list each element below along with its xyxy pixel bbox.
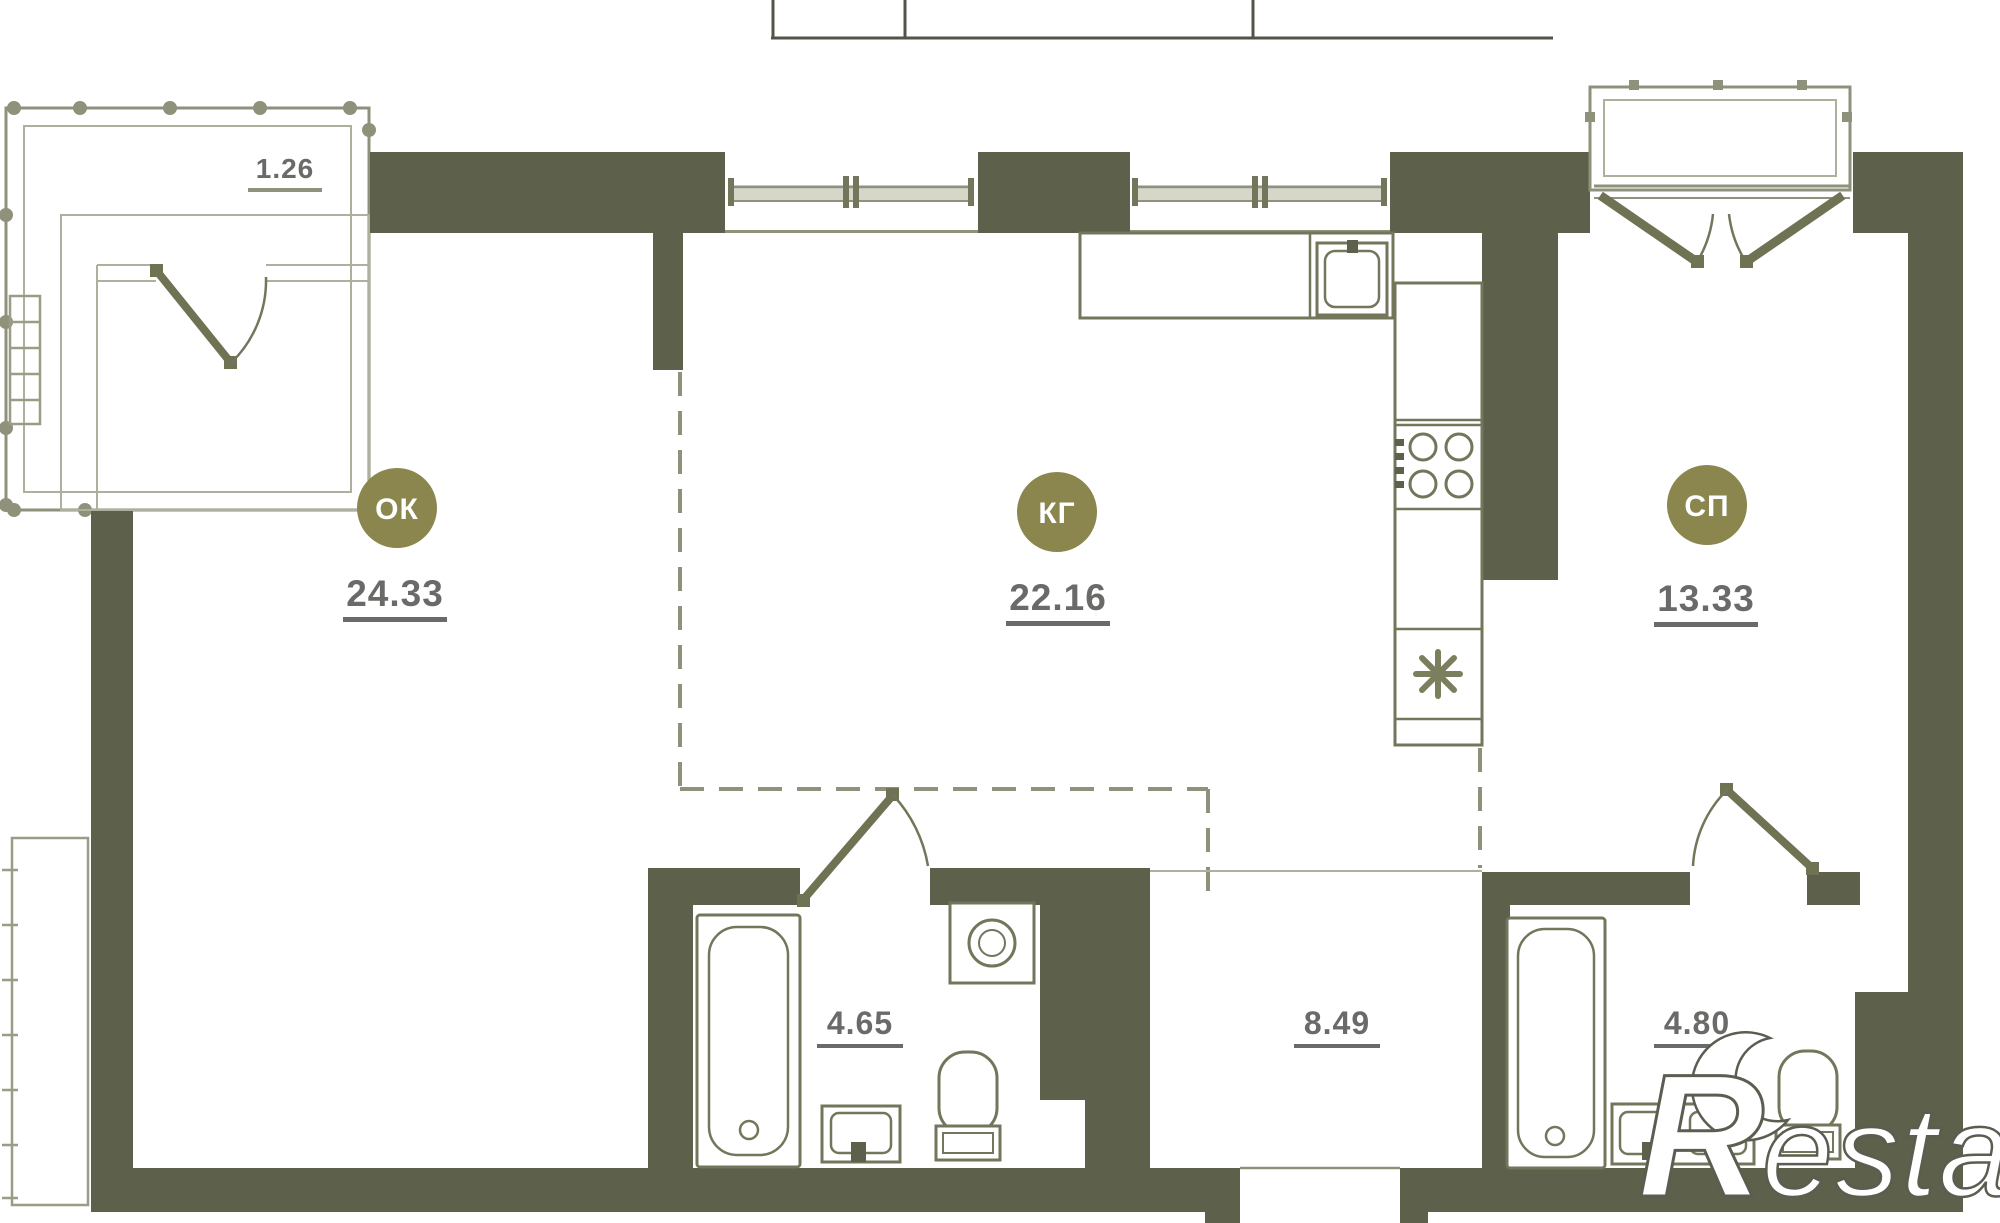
wall <box>1853 152 1963 233</box>
water-heater-icon <box>1416 652 1460 696</box>
room-area: 22.16 <box>1009 577 1107 618</box>
room-code: ОК <box>375 493 419 526</box>
area-underline <box>343 617 447 622</box>
bathtub-icon <box>697 915 800 1167</box>
wall <box>370 152 725 233</box>
area-underline <box>817 1044 903 1048</box>
wall <box>978 152 1130 233</box>
wall <box>1482 872 1510 905</box>
wall <box>1510 872 1690 905</box>
room-code: СП <box>1684 490 1729 523</box>
washing-machine-icon <box>950 903 1034 983</box>
watermark-logo-letter: R <box>1638 1039 1764 1223</box>
wall <box>1085 1100 1150 1168</box>
zone-area: 8.49 <box>1304 1005 1370 1041</box>
room-area: 24.33 <box>346 573 444 614</box>
bathtub-icon <box>1507 918 1605 1168</box>
area-underline <box>248 188 322 192</box>
room-area: 13.33 <box>1657 578 1755 619</box>
wall <box>1807 872 1860 905</box>
wall <box>930 868 1150 905</box>
sink-icon <box>822 1106 900 1162</box>
kitchen-sink-icon <box>1317 240 1387 315</box>
kitchen-counter-icon <box>1080 233 1393 318</box>
zone-area: 4.65 <box>827 1005 893 1041</box>
floor-plan: ОК 24.33 КГ 22.16 СП 13.33 4.65 8.49 4.8… <box>0 0 2000 1223</box>
zone-area: 4.80 <box>1664 1005 1730 1041</box>
wall <box>1205 1212 1240 1223</box>
area-underline <box>1294 1044 1380 1048</box>
wall <box>91 1168 1240 1212</box>
wall <box>1400 1212 1428 1223</box>
area-underline <box>1006 621 1110 626</box>
wall <box>1040 905 1150 1100</box>
balcony-area: 1.26 <box>256 153 315 184</box>
wall <box>648 905 693 1168</box>
area-underline <box>1654 622 1758 627</box>
wall <box>1908 233 1963 1168</box>
toilet-icon <box>936 1052 1000 1160</box>
wall <box>1482 233 1558 580</box>
watermark-text: estate <box>1762 1081 2000 1223</box>
wall <box>91 511 133 1168</box>
appliance-column <box>1395 283 1482 745</box>
wall <box>648 868 800 905</box>
wall <box>1390 152 1590 233</box>
room-code: КГ <box>1038 497 1075 530</box>
wall <box>653 233 683 370</box>
